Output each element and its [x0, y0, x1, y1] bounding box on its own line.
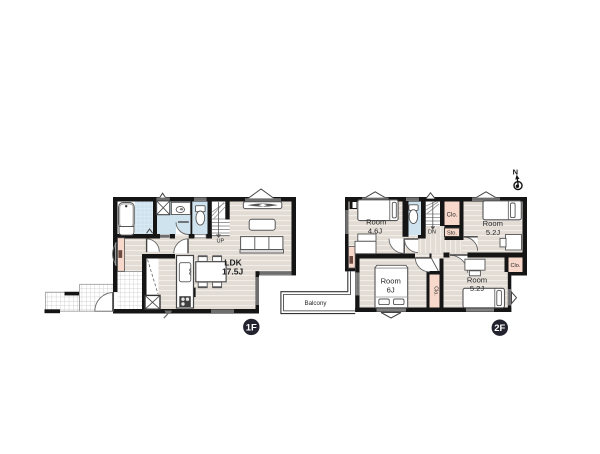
svg-text:5.2J: 5.2J [470, 284, 485, 293]
svg-text:5.2J: 5.2J [486, 228, 501, 237]
svg-text:UP: UP [217, 238, 225, 244]
svg-text:2F: 2F [494, 323, 505, 334]
svg-text:Clo.: Clo. [511, 263, 521, 269]
svg-text:Sto.: Sto. [447, 231, 457, 237]
svg-text:17.5J: 17.5J [222, 266, 244, 276]
svg-text:Room: Room [366, 218, 386, 227]
svg-text:Clo.: Clo. [447, 212, 458, 218]
svg-text:1F: 1F [246, 322, 257, 333]
svg-text:4.6J: 4.6J [368, 226, 383, 235]
svg-text:Room: Room [483, 219, 503, 228]
svg-text:N: N [513, 168, 518, 177]
svg-text:Room: Room [381, 277, 401, 286]
svg-text:6J: 6J [387, 286, 395, 295]
svg-text:Clo.: Clo. [433, 286, 439, 296]
svg-text:DN: DN [428, 230, 436, 236]
svg-text:Balcony: Balcony [304, 300, 327, 307]
